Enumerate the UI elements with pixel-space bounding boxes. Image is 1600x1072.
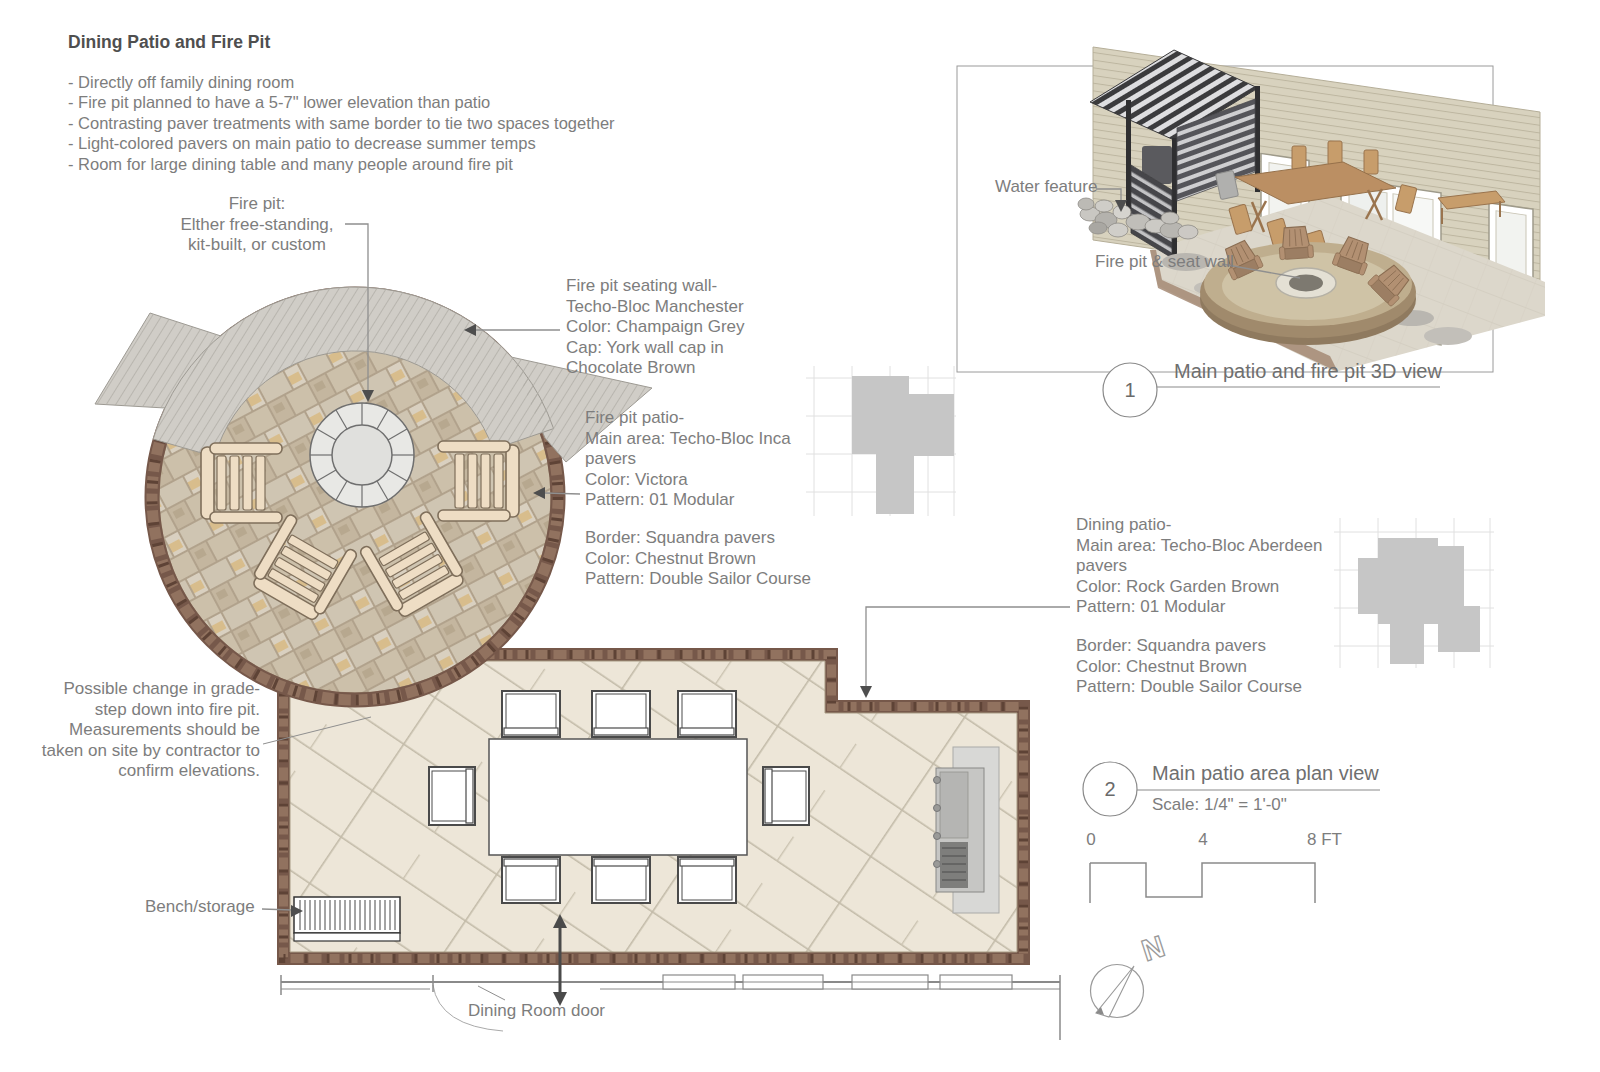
label-fire-pit: Fire pit: Elther free-standing, kit-buil… [168, 194, 346, 256]
paver-swatch-aberdeen [1334, 518, 1494, 668]
label-fire-pit-seat-wall: Fire pit & seat wall [1095, 252, 1234, 273]
note-line: - Directly off family dining room [68, 72, 615, 92]
scale-bar: 0 4 8 FT [1086, 830, 1342, 903]
note-line: - Fire pit planned to have a 5-7" lower … [68, 92, 615, 112]
scale-tick-0: 0 [1086, 830, 1095, 849]
paver-swatch-inca [806, 366, 956, 516]
label-dining-door: Dining Room door [468, 1001, 605, 1022]
dining-table [489, 739, 747, 855]
label-water-feature: Water feature [995, 177, 1097, 198]
note-line: - Contrasting paver treatments with same… [68, 113, 615, 133]
design-sheet: 1 2 0 4 8 FT N Dining Patio and Fire Pit… [0, 0, 1600, 1072]
north-label: N [1138, 929, 1169, 967]
view-3d [957, 47, 1545, 372]
label-dining-patio: Dining patio- Main area: Techo-Bloc Aber… [1076, 515, 1322, 618]
label-bench: Bench/storage [145, 897, 255, 918]
note-line: - Light-colored pavers on main patio to … [68, 133, 615, 153]
scale-tick-4: 4 [1198, 830, 1207, 849]
label-dining-border: Border: Squandra pavers Color: Chestnut … [1076, 636, 1302, 698]
callout-1-number: 1 [1124, 379, 1135, 401]
callout-2-subtitle: Scale: 1/4" = 1'-0" [1152, 795, 1287, 815]
page-title: Dining Patio and Fire Pit [68, 32, 270, 53]
bench-plan [294, 897, 400, 941]
label-fire-pit-border: Border: Squandra pavers Color: Chestnut … [585, 528, 811, 590]
house-wall-plan [281, 975, 1060, 1040]
callout-2-title: Main patio area plan view [1152, 762, 1379, 785]
label-fire-pit-patio: Fire pit patio- Main area: Techo-Bloc In… [585, 408, 791, 511]
label-seating-wall: Fire pit seating wall- Techo-Bloc Manche… [566, 276, 745, 379]
label-grade-note: Possible change in grade- step down into… [10, 679, 260, 782]
callout-1-title: Main patio and fire pit 3D view [1174, 360, 1442, 383]
fire-pit-ring [310, 403, 414, 507]
grill-plan [934, 747, 1000, 913]
callout-2-number: 2 [1104, 778, 1115, 800]
scale-tick-8ft: 8 FT [1307, 830, 1342, 849]
arrowhead [860, 686, 872, 698]
note-line: - Room for large dining table and many p… [68, 154, 615, 174]
design-notes: - Directly off family dining room - Fire… [68, 72, 615, 174]
north-arrow: N [1091, 929, 1169, 1017]
